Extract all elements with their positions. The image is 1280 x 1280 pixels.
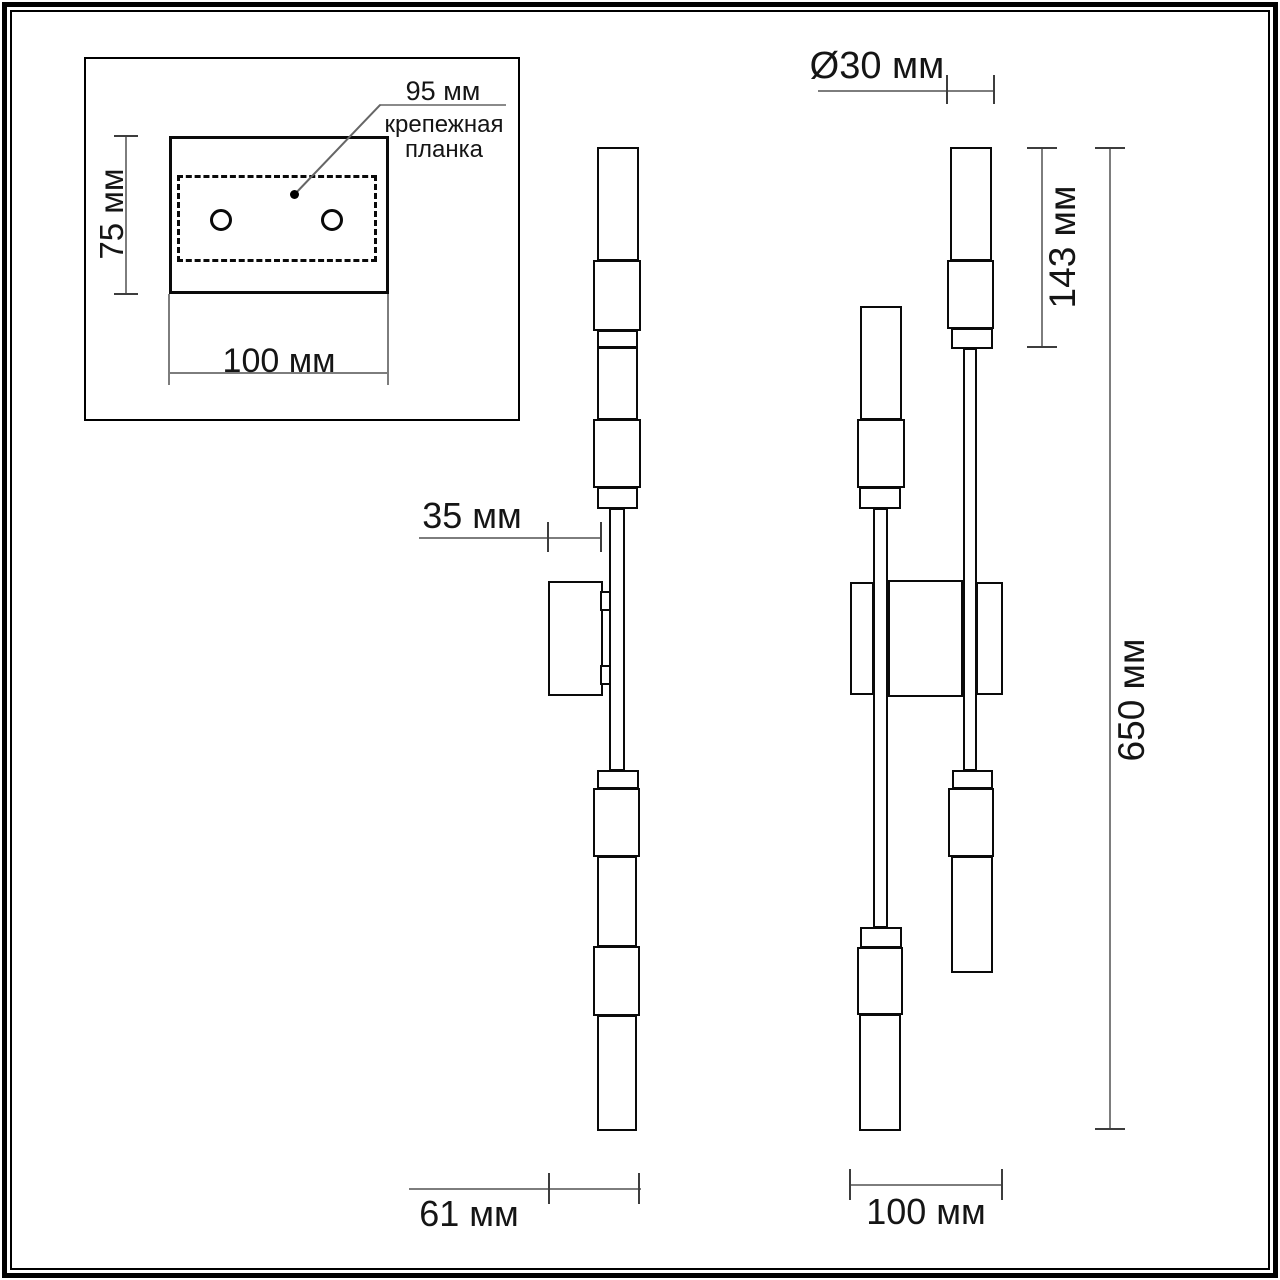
tube-length-label: 143 мм [1043, 137, 1083, 357]
plate-height-label: 75 мм [94, 149, 130, 279]
mounting-plate-inset: 95 мм крепежная планка 75 мм 100 мм [84, 57, 520, 421]
dim-650-tick-top [1095, 147, 1125, 149]
wall-box-right-flange [976, 582, 1003, 695]
dim-650-tick-bottom [1095, 1128, 1125, 1130]
mounting-bracket-dashed-outline [177, 175, 377, 262]
wall-box-left-flange [850, 582, 874, 695]
tube-cap [597, 487, 638, 509]
tube-segment [947, 260, 994, 329]
screw-hole-left [210, 209, 232, 231]
dim-35-tick-left [547, 522, 549, 552]
tube-segment [593, 260, 641, 331]
leader-dot [290, 190, 299, 199]
wall-box-center [888, 580, 963, 697]
plate-name-label: крепежная планка [381, 112, 507, 163]
dim-30-tick-right [993, 75, 995, 104]
dim-61-tick-right [638, 1173, 640, 1204]
stem-rod-left [873, 508, 888, 928]
tube-segment [597, 856, 637, 947]
tube-segment [597, 147, 639, 261]
leader-line-horizontal [380, 104, 506, 106]
wall-bracket-side [548, 581, 603, 696]
bracket-connector-top [600, 591, 611, 611]
tube-cap [860, 927, 902, 948]
dim-35-line [419, 537, 602, 539]
tube-segment [593, 788, 640, 857]
screw-hole-right [321, 209, 343, 231]
tube-cap [859, 487, 901, 509]
dim-35-tick-right [600, 522, 602, 552]
total-height-label: 650 мм [1112, 590, 1152, 810]
hole-spacing-label: 95 мм [380, 76, 506, 107]
tube-segment [597, 330, 638, 348]
tube-segment [597, 1015, 637, 1131]
tube-segment [948, 788, 994, 857]
wall-offset-label: 35 мм [408, 495, 536, 537]
dim-61-tick-left [548, 1173, 550, 1204]
depth-label: 61 мм [404, 1193, 534, 1235]
dim-30-line [818, 90, 995, 92]
diameter-label: Ø30 мм [806, 45, 948, 88]
dim-30-tick-left [946, 75, 948, 104]
tube-segment [593, 946, 640, 1016]
tube-cap [951, 328, 993, 349]
tube-segment [860, 306, 902, 420]
tube-segment [859, 1014, 901, 1131]
dim-100f-line [850, 1184, 1003, 1186]
bracket-connector-bottom [600, 665, 611, 685]
stem-rod-right [963, 348, 977, 771]
tube-segment [950, 147, 992, 261]
dim-61-line [409, 1188, 641, 1190]
plate-width-label: 100 мм [169, 342, 389, 381]
tube-segment [857, 419, 905, 488]
tube-segment [951, 856, 993, 973]
tube-cap [952, 770, 993, 789]
front-width-label: 100 мм [845, 1191, 1007, 1233]
tube-segment [857, 947, 903, 1015]
dim-75-tick-top [114, 135, 138, 137]
tube-segment [593, 419, 641, 488]
stem-rod [609, 508, 625, 771]
dim-75-tick-bottom [114, 293, 138, 295]
tube-segment [597, 347, 638, 420]
tube-cap [597, 770, 639, 789]
drawing-canvas: 95 мм крепежная планка 75 мм 100 мм [0, 0, 1280, 1280]
